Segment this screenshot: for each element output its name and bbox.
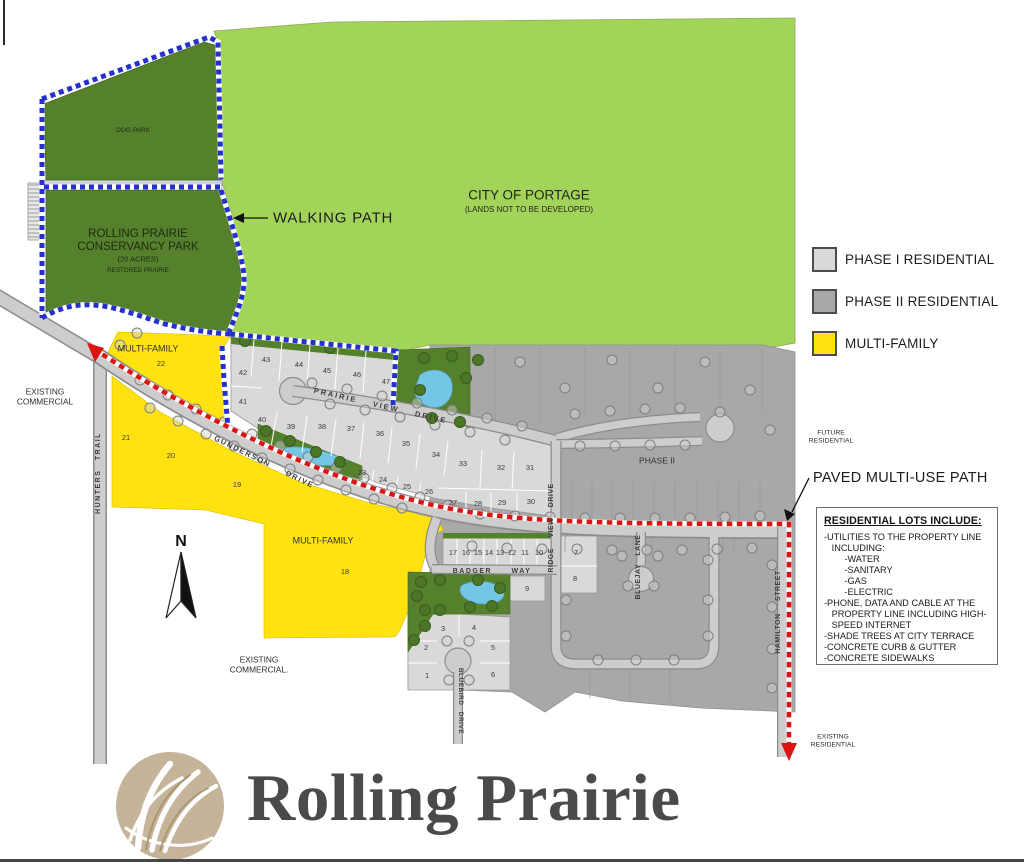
area-city-of-portage	[214, 18, 795, 352]
lot-number-7: 7	[574, 548, 578, 557]
tree-icon	[416, 577, 427, 588]
tree-icon	[653, 383, 663, 393]
tree-icon	[617, 551, 627, 561]
lot-number-40: 40	[258, 415, 266, 424]
tree-icon	[605, 406, 615, 416]
lot-number-30: 30	[527, 497, 535, 506]
lot-number-10: 10	[535, 548, 543, 557]
tree-icon	[720, 512, 730, 522]
site-plan-map: N 12345678910111213141516171819202122232…	[0, 0, 1024, 866]
lot-number-46: 46	[353, 370, 361, 379]
bottom-rule	[0, 859, 1024, 862]
lot-number-44: 44	[295, 360, 303, 369]
tree-icon	[712, 544, 722, 554]
tree-icon	[570, 409, 580, 419]
lot-number-33: 33	[459, 459, 467, 468]
residential-lots-line: -ELECTRIC	[824, 587, 991, 598]
tree-icon	[767, 560, 777, 570]
legend-label-multifamily: MULTI-FAMILY	[845, 336, 938, 351]
tree-icon	[464, 675, 474, 685]
tree-icon	[560, 383, 570, 393]
hatched-structure	[28, 183, 41, 240]
tree-icon	[285, 436, 296, 447]
lot-number-27: 27	[449, 498, 457, 507]
tree-icon	[515, 357, 525, 367]
tree-icon	[677, 545, 687, 555]
logo-wordmark: Rolling Prairie	[247, 760, 681, 837]
lot-number-31: 31	[526, 463, 534, 472]
street-label-bluejay-lane: BLUEJAY LANE	[635, 535, 642, 600]
tree-icon	[755, 511, 765, 521]
tree-icon	[415, 385, 426, 396]
lot-number-12: 12	[508, 548, 516, 557]
residential-lots-line: INCLUDING:	[824, 543, 991, 554]
tree-icon	[561, 595, 571, 605]
tree-icon	[311, 447, 322, 458]
legend-label-phase1: PHASE I RESIDENTIAL	[845, 252, 994, 267]
tree-icon	[765, 425, 775, 435]
tree-icon	[369, 494, 379, 504]
tree-icon	[642, 545, 652, 555]
north-arrow: N	[166, 533, 196, 618]
legend: PHASE I RESIDENTIAL PHASE II RESIDENTIAL…	[812, 247, 998, 356]
legend-item-multifamily: MULTI-FAMILY	[812, 331, 998, 356]
tree-icon	[444, 675, 454, 685]
phase1-swatch-icon	[812, 247, 837, 272]
tree-icon	[201, 429, 211, 439]
tree-icon	[703, 595, 713, 605]
tree-icon	[261, 426, 272, 437]
tree-icon	[747, 543, 757, 553]
lot-number-5: 5	[491, 643, 495, 652]
multifamily-18-label: MULTI-FAMILY	[293, 535, 354, 546]
tree-icon	[623, 581, 633, 591]
lot-number-17: 17	[449, 548, 457, 557]
tree-icon	[442, 636, 452, 646]
residential-lots-line: -CONCRETE SIDEWALKS	[824, 653, 991, 664]
lot-number-38: 38	[318, 422, 326, 431]
tree-icon	[435, 605, 446, 616]
residential-lots-line: -SANITARY	[824, 565, 991, 576]
lot-number-45: 45	[323, 366, 331, 375]
tree-icon	[703, 555, 713, 565]
tree-icon	[745, 385, 755, 395]
dog-park-label: DOG PARK	[116, 127, 150, 135]
paved-path-label: PAVED MULTI-USE PATH	[813, 470, 988, 486]
street-label-badger-way: BADGER WAY	[453, 568, 532, 575]
tree-icon	[465, 427, 475, 437]
street-label-ridge-view-drive: RIDGE VIEW DRIVE	[548, 483, 555, 572]
lot-number-15: 15	[474, 548, 482, 557]
legend-label-phase2: PHASE II RESIDENTIAL	[845, 294, 998, 309]
lot-number-9: 9	[525, 584, 529, 593]
tree-icon	[700, 357, 710, 367]
lot-number-36: 36	[376, 429, 384, 438]
street-label-hamilton-street: HAMILTON STREET	[775, 570, 782, 654]
tree-icon	[500, 435, 510, 445]
tree-icon	[669, 655, 679, 665]
lot-number-20: 20	[167, 451, 175, 460]
tree-icon	[455, 417, 466, 428]
tree-icon	[517, 421, 527, 431]
walking-path-label: WALKING PATH	[273, 210, 393, 227]
lot-number-26: 26	[425, 487, 433, 496]
lot-number-2: 2	[424, 643, 428, 652]
lot-number-43: 43	[262, 355, 270, 364]
page-edge-mark	[3, 0, 5, 45]
lot-number-35: 35	[402, 439, 410, 448]
tree-icon	[409, 635, 420, 646]
lot-number-37: 37	[347, 424, 355, 433]
residential-lots-line: -GAS	[824, 576, 991, 587]
tree-icon	[767, 683, 777, 693]
lot-number-1: 1	[425, 671, 429, 680]
tree-icon	[645, 440, 655, 450]
street-label-hunters-trail: HUNTERS TRAIL	[95, 432, 102, 514]
tree-icon	[435, 575, 446, 586]
tree-icon	[653, 551, 663, 561]
tree-icon	[675, 403, 685, 413]
lot-number-47: 47	[382, 377, 390, 386]
multifamily-swatch-icon	[812, 331, 837, 356]
tree-icon	[412, 591, 423, 602]
tree-icon	[132, 328, 142, 338]
tree-icon	[447, 405, 457, 415]
tree-icon	[607, 355, 617, 365]
tree-icon	[610, 441, 620, 451]
tree-icon	[482, 413, 492, 423]
tree-icon	[593, 655, 603, 665]
tree-icon	[715, 407, 725, 417]
tree-icon	[397, 503, 407, 513]
tree-icon	[640, 404, 650, 414]
tree-icon	[495, 583, 506, 594]
tree-icon	[473, 575, 484, 586]
tree-icon	[341, 485, 351, 495]
tree-icon	[325, 399, 335, 409]
city-parcel-note: (LANDS NOT TO BE DEVELOPED)	[465, 205, 593, 215]
site-plan-page: N 12345678910111213141516171819202122232…	[0, 0, 1024, 866]
tree-icon	[447, 351, 458, 362]
lot-number-6: 6	[491, 670, 495, 679]
logo-mark	[116, 752, 224, 860]
residential-lots-line: -SHADE TREES AT CITY TERRACE	[824, 631, 991, 642]
lot-number-34: 34	[432, 450, 440, 459]
tree-icon	[649, 581, 659, 591]
lot-number-22: 22	[157, 359, 165, 368]
residential-lots-line: PROPERTY LINE INCLUDING HIGH-	[824, 609, 991, 620]
existing-residential-label: EXISTING RESIDENTIAL	[807, 734, 859, 751]
residential-lots-line: -UTILITIES TO THE PROPERTY LINE	[824, 532, 991, 543]
lot-number-24: 24	[379, 475, 387, 484]
tree-icon	[173, 416, 183, 426]
conservancy-name-line2: CONSERVANCY PARK	[77, 240, 198, 254]
lot-number-28: 28	[474, 499, 482, 508]
phase2-area-label: PHASE II	[639, 456, 675, 467]
legend-item-phase2: PHASE II RESIDENTIAL	[812, 289, 998, 314]
lot-number-11: 11	[521, 548, 529, 557]
lot-number-8: 8	[573, 574, 577, 583]
residential-lots-line: SPEED INTERNET	[824, 620, 991, 631]
tree-icon	[465, 602, 476, 613]
phase2-swatch-icon	[812, 289, 837, 314]
tree-icon	[464, 636, 474, 646]
conservancy-acreage: (20 ACRES)	[118, 254, 159, 263]
lot-number-21: 21	[122, 433, 130, 442]
lot-number-18: 18	[341, 567, 349, 576]
tree-icon	[420, 605, 431, 616]
future-residential-label: FUTURE RESIDENTIAL	[805, 430, 857, 447]
lot-number-25: 25	[403, 482, 411, 491]
lot-number-41: 41	[239, 397, 247, 406]
tree-icon	[473, 355, 484, 366]
multifamily-22-label: MULTI-FAMILY	[118, 343, 179, 354]
tree-icon	[461, 373, 472, 384]
lot-number-19: 19	[233, 480, 241, 489]
tree-icon	[335, 457, 346, 468]
tree-icon	[607, 545, 617, 555]
existing-commercial-nw-label: EXISTING COMMERCIAL	[5, 387, 85, 408]
lot-number-32: 32	[497, 463, 505, 472]
legend-item-phase1: PHASE I RESIDENTIAL	[812, 247, 998, 272]
tree-icon	[680, 440, 690, 450]
residential-lots-line: -CONCRETE CURB & GUTTER	[824, 642, 991, 653]
tree-icon	[145, 403, 155, 413]
north-arrow-label: N	[175, 533, 187, 550]
tree-icon	[703, 631, 713, 641]
lot-number-14: 14	[485, 548, 493, 557]
tree-icon	[487, 601, 498, 612]
tree-icon	[631, 655, 641, 665]
residential-lots-line: -PHONE, DATA AND CABLE AT THE	[824, 598, 991, 609]
tree-icon	[412, 398, 422, 408]
lot-number-39: 39	[287, 422, 295, 431]
tree-icon	[575, 441, 585, 451]
existing-commercial-s-label: EXISTING COMMERCIAL.	[219, 655, 299, 676]
lot-number-13: 13	[496, 548, 504, 557]
lot-number-4: 4	[472, 623, 476, 632]
conservancy-restored-prairie: RESTORED PRAIRIE	[107, 267, 169, 275]
lot-number-16: 16	[462, 548, 470, 557]
lot-number-23: 23	[358, 468, 366, 477]
street-label-bluebird-drive: BLUEBIRD DRIVE	[457, 668, 464, 734]
lot-number-29: 29	[498, 498, 506, 507]
tree-icon	[419, 353, 430, 364]
residential-lots-box: RESIDENTIAL LOTS INCLUDE: -UTILITIES TO …	[816, 507, 998, 665]
tree-icon	[561, 631, 571, 641]
city-parcel-name: CITY OF PORTAGE	[468, 188, 590, 205]
residential-lots-line: -WATER	[824, 554, 991, 565]
tree-icon	[420, 621, 431, 632]
residential-lots-title: RESIDENTIAL LOTS INCLUDE:	[824, 515, 991, 527]
lot-number-3: 3	[441, 624, 445, 633]
lot-number-42: 42	[239, 368, 247, 377]
